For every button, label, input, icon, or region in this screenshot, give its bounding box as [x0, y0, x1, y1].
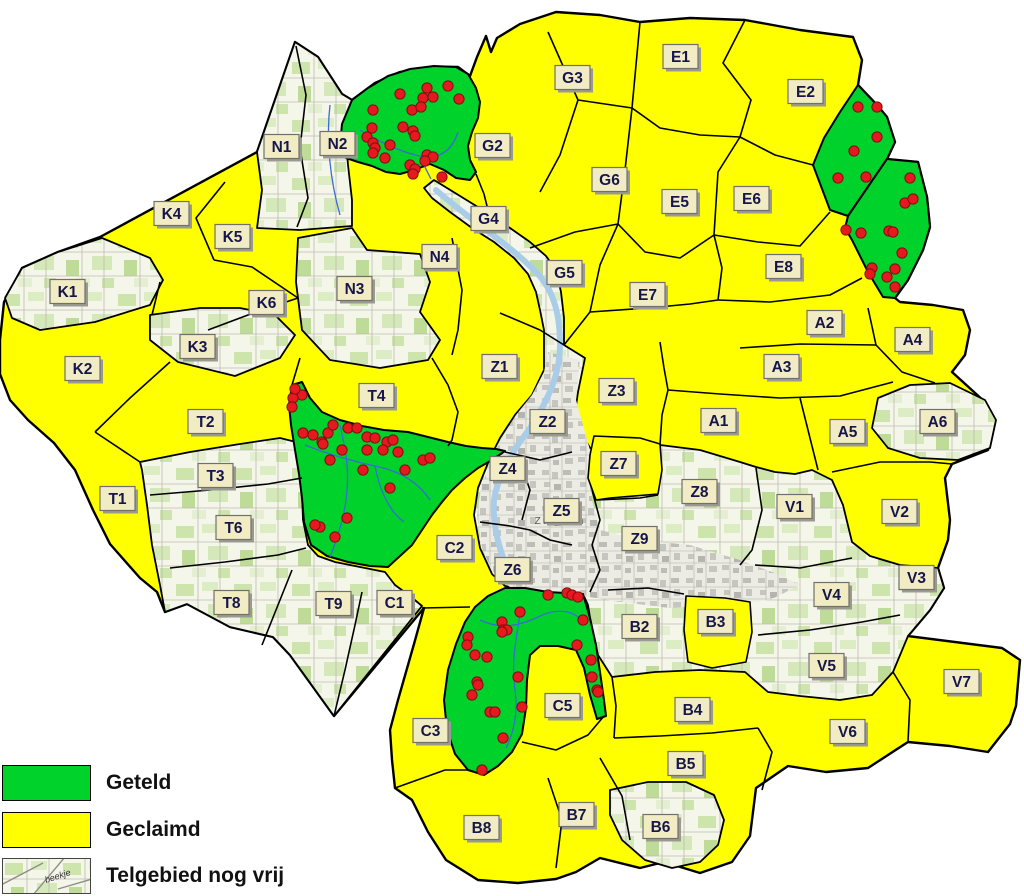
count-dot-noordoost	[888, 227, 898, 237]
region-label-C5[interactable]: C5	[545, 694, 583, 721]
legend-item-vrij: beekje Telgebied nog vrij	[2, 858, 284, 894]
region-label-text: B4	[683, 702, 703, 719]
count-dot-noordoost	[897, 248, 907, 258]
region-label-text: G3	[562, 70, 583, 87]
region-label-text: G5	[554, 265, 575, 282]
count-dot-noord	[410, 131, 420, 141]
count-dot-centraal	[308, 430, 318, 440]
region-label-T1[interactable]: T1	[100, 487, 138, 514]
region-label-T8[interactable]: T8	[214, 591, 252, 618]
region-label-text: K6	[257, 295, 277, 312]
count-dot-noordoost	[849, 146, 859, 156]
legend-item-geclaimd: Geclaimd	[2, 812, 201, 848]
region-label-text: V7	[952, 674, 971, 691]
region-label-text: Z9	[630, 531, 648, 548]
region-label-B8[interactable]: B8	[464, 816, 502, 843]
count-dot-zuid	[497, 627, 507, 637]
region-label-T6[interactable]: T6	[216, 516, 254, 543]
count-dot-noord	[428, 92, 438, 102]
count-dot-noordoost	[890, 282, 900, 292]
legend-topo-sample: beekje	[3, 859, 90, 893]
count-dot-noord	[408, 169, 418, 179]
region-label-text: G4	[478, 211, 499, 228]
region-label-text: T1	[108, 491, 126, 508]
region-label-K4[interactable]: K4	[154, 202, 192, 229]
count-dot-noord	[395, 89, 405, 99]
region-label-text: B5	[676, 756, 696, 773]
count-dot-noord	[368, 148, 378, 158]
region-label-text: C5	[553, 698, 573, 715]
region-label-E1[interactable]: E1	[663, 45, 701, 72]
count-dot-centraal	[385, 483, 395, 493]
count-dot-noordoost	[882, 272, 892, 282]
region-label-K6[interactable]: K6	[249, 291, 287, 318]
count-dot-zuid	[572, 640, 582, 650]
region-label-Z8[interactable]: Z8	[682, 480, 720, 507]
region-label-Z6[interactable]: Z6	[495, 558, 533, 585]
count-dot-noord	[454, 94, 464, 104]
region-label-text: E2	[796, 84, 815, 101]
region-label-A2[interactable]: A2	[807, 311, 845, 338]
count-dot-noord	[385, 140, 395, 150]
count-dot-centraal	[310, 520, 320, 530]
region-label-N3[interactable]: N3	[337, 277, 375, 304]
region-label-text: C2	[445, 540, 465, 557]
region-label-T4[interactable]: T4	[359, 384, 397, 411]
region-label-text: Z7	[609, 456, 627, 473]
region-label-B7[interactable]: B7	[559, 803, 597, 830]
region-label-text: T8	[222, 595, 240, 612]
region-label-text: B8	[472, 820, 492, 837]
count-dot-centraal	[298, 428, 308, 438]
region-label-N4[interactable]: N4	[422, 245, 460, 272]
region-label-text: E5	[670, 194, 689, 211]
count-dot-centraal	[325, 455, 335, 465]
region-label-V4[interactable]: V4	[814, 583, 852, 610]
count-dot-noord	[398, 122, 408, 132]
count-dot-centraal	[370, 433, 380, 443]
region-label-text: V2	[890, 504, 909, 521]
count-dot-centraal	[362, 445, 372, 455]
region-label-text: T9	[324, 596, 342, 613]
region-label-E6[interactable]: E6	[734, 187, 772, 214]
region-label-T9[interactable]: T9	[316, 592, 354, 619]
count-dot-zuid	[517, 702, 527, 712]
count-dot-zuid	[513, 672, 523, 682]
region-label-Z7[interactable]: Z7	[601, 452, 639, 479]
region-label-text: A2	[815, 315, 835, 332]
region-label-N2[interactable]: N2	[320, 132, 358, 159]
count-dot-centraal	[352, 423, 362, 433]
region-label-text: V3	[907, 570, 926, 587]
region-label-text: Z5	[552, 503, 570, 520]
region-label-V2[interactable]: V2	[882, 500, 920, 527]
region-label-C2[interactable]: C2	[437, 536, 475, 563]
count-dot-centraal	[330, 532, 340, 542]
region-label-text: Z4	[498, 461, 516, 478]
legend-item-geteld: Geteld	[2, 765, 171, 801]
census-map-page: Zutphen N1N2N3N4G2G3G4G5G6E1E2E5E6E7E8K1…	[0, 0, 1024, 896]
region-label-text: V4	[822, 587, 841, 604]
region-label-text: B2	[630, 619, 650, 636]
region-label-K1[interactable]: K1	[50, 280, 88, 307]
count-dot-centraal	[393, 447, 403, 457]
region-label-text: A3	[772, 359, 792, 376]
region-label-text: Z6	[503, 562, 521, 579]
region-label-text: V6	[838, 724, 857, 741]
region-label-E8[interactable]: E8	[766, 255, 804, 282]
count-dot-zuid	[477, 765, 487, 775]
region-label-A6[interactable]: A6	[920, 410, 958, 437]
legend: Geteld Geclaimd beekje Telgebied nog vri…	[2, 765, 342, 896]
count-dot-noordoost	[905, 173, 915, 183]
region-label-text: A6	[928, 414, 948, 431]
count-dot-zuid	[482, 652, 492, 662]
region-label-G5[interactable]: G5	[547, 261, 585, 288]
region-label-text: K1	[58, 284, 78, 301]
region-label-N1[interactable]: N1	[264, 135, 302, 162]
region-label-T3[interactable]: T3	[198, 464, 236, 491]
region-label-text: Z1	[490, 359, 508, 376]
region-label-V3[interactable]: V3	[899, 566, 937, 593]
count-dot-centraal	[400, 465, 410, 475]
region-label-text: A1	[709, 413, 729, 430]
count-dot-noord	[420, 156, 430, 166]
count-dot-noordoost	[865, 269, 875, 279]
count-dot-centraal	[337, 445, 347, 455]
count-dot-noord	[416, 102, 426, 112]
region-label-text: Z3	[607, 383, 625, 400]
region-label-text: Z2	[538, 414, 556, 431]
region-label-text: E8	[774, 259, 793, 276]
region-label-V7[interactable]: V7	[944, 670, 982, 697]
count-dot-zuid	[586, 655, 596, 665]
region-label-text: T6	[224, 520, 242, 537]
region-label-Z9[interactable]: Z9	[622, 527, 660, 554]
count-dot-zuid	[473, 680, 483, 690]
region-label-Z2[interactable]: Z2	[530, 410, 568, 437]
region-label-B2[interactable]: B2	[622, 615, 660, 642]
count-dot-noord	[422, 83, 432, 93]
region-label-G6[interactable]: G6	[592, 168, 630, 195]
region-label-K2[interactable]: K2	[65, 357, 103, 384]
region-label-B5[interactable]: B5	[668, 752, 706, 779]
region-label-text: T2	[196, 414, 214, 431]
region-label-Z1[interactable]: Z1	[482, 355, 520, 382]
count-dot-zuid	[587, 672, 597, 682]
region-label-text: K4	[162, 206, 182, 223]
region-label-G2[interactable]: G2	[475, 134, 513, 161]
region-label-text: A4	[903, 332, 923, 349]
region-label-text: N2	[328, 136, 348, 153]
region-label-text: K2	[73, 361, 93, 378]
legend-label-geclaimd: Geclaimd	[106, 818, 201, 842]
region-label-text: T4	[367, 388, 385, 405]
legend-swatch-vrij: beekje	[2, 858, 91, 894]
count-dot-noordoost	[872, 102, 882, 112]
region-label-text: V5	[817, 658, 836, 675]
count-dot-noordoost	[872, 132, 882, 142]
count-dot-centraal	[425, 453, 435, 463]
count-dot-noordoost	[841, 225, 851, 235]
region-label-text: E1	[671, 49, 690, 66]
count-dot-noordoost	[833, 173, 843, 183]
legend-swatch-geteld	[2, 765, 91, 801]
count-dot-centraal	[388, 435, 398, 445]
region-label-A3[interactable]: A3	[764, 355, 802, 382]
region-label-text: A5	[838, 424, 858, 441]
region-label-text: B6	[651, 819, 671, 836]
region-label-text: N1	[272, 139, 292, 156]
region-label-text: C1	[385, 595, 405, 612]
count-dot-noordoost	[890, 264, 900, 274]
region-label-E2[interactable]: E2	[788, 80, 826, 107]
count-dot-centraal	[318, 439, 328, 449]
count-dot-zuid	[462, 640, 472, 650]
region-label-text: Z8	[690, 484, 708, 501]
region-label-G3[interactable]: G3	[555, 66, 593, 93]
count-dot-centraal	[290, 384, 300, 394]
region-label-B6[interactable]: B6	[643, 815, 681, 842]
region-label-B3[interactable]: B3	[698, 610, 736, 637]
legend-swatch-geclaimd	[2, 812, 91, 848]
region-label-text: C3	[421, 723, 441, 740]
region-label-T2[interactable]: T2	[188, 410, 226, 437]
region-label-text: B3	[706, 614, 726, 631]
region-label-A4[interactable]: A4	[895, 328, 933, 355]
region-border-36	[422, 607, 470, 608]
count-dot-noord	[418, 93, 428, 103]
legend-label-geteld: Geteld	[106, 771, 171, 795]
territory-map: Zutphen N1N2N3N4G2G3G4G5G6E1E2E5E6E7E8K1…	[0, 0, 1024, 896]
region-label-Z4[interactable]: Z4	[490, 457, 528, 484]
count-dot-noordoost	[861, 172, 871, 182]
count-dot-noord	[368, 105, 378, 115]
count-dot-zuid	[498, 733, 508, 743]
count-dot-zuid	[467, 690, 477, 700]
count-dot-centraal	[287, 402, 297, 412]
region-label-text: K3	[188, 339, 208, 356]
region-label-text: N4	[430, 249, 450, 266]
region-label-text: V1	[785, 499, 804, 516]
region-label-C1[interactable]: C1	[377, 591, 415, 618]
region-label-text: B7	[567, 807, 587, 824]
region-label-V5[interactable]: V5	[809, 654, 847, 681]
count-dot-zuid	[593, 687, 603, 697]
region-label-V6[interactable]: V6	[830, 720, 868, 747]
count-dot-noord	[380, 153, 390, 163]
count-dot-centraal	[358, 465, 368, 475]
region-label-Z5[interactable]: Z5	[544, 499, 582, 526]
count-dot-noord	[437, 172, 447, 182]
region-label-E5[interactable]: E5	[662, 190, 700, 217]
region-label-Z3[interactable]: Z3	[599, 379, 637, 406]
count-dot-zuid	[515, 607, 525, 617]
region-label-K3[interactable]: K3	[180, 335, 218, 362]
count-dot-zuid	[543, 590, 553, 600]
count-dot-zuid	[470, 650, 480, 660]
count-dot-noord	[367, 123, 377, 133]
region-label-A5[interactable]: A5	[830, 420, 868, 447]
region-label-text: E7	[638, 287, 657, 304]
count-dot-noord	[443, 81, 453, 91]
region-label-text: G2	[482, 138, 503, 155]
count-dot-centraal	[328, 420, 338, 430]
count-dot-noordoost	[856, 228, 866, 238]
count-dot-noordoost	[853, 102, 863, 112]
region-label-V1[interactable]: V1	[777, 495, 815, 522]
count-dot-centraal	[378, 445, 388, 455]
region-label-G4[interactable]: G4	[471, 207, 509, 234]
region-label-E7[interactable]: E7	[630, 283, 668, 310]
region-label-text: N3	[345, 281, 365, 298]
region-label-K5[interactable]: K5	[215, 225, 253, 252]
count-dot-zuid	[490, 707, 500, 717]
region-label-text: K5	[223, 229, 243, 246]
region-label-A1[interactable]: A1	[701, 409, 739, 436]
count-dot-centraal	[342, 513, 352, 523]
region-label-B4[interactable]: B4	[675, 698, 713, 725]
count-dot-zuid	[573, 592, 583, 602]
region-label-text: G6	[599, 172, 620, 189]
legend-label-vrij: Telgebied nog vrij	[106, 864, 284, 888]
region-label-C3[interactable]: C3	[413, 719, 451, 746]
count-dot-noordoost	[908, 194, 918, 204]
region-label-text: E6	[742, 191, 761, 208]
count-dot-zuid	[578, 615, 588, 625]
region-label-text: T3	[206, 468, 224, 485]
